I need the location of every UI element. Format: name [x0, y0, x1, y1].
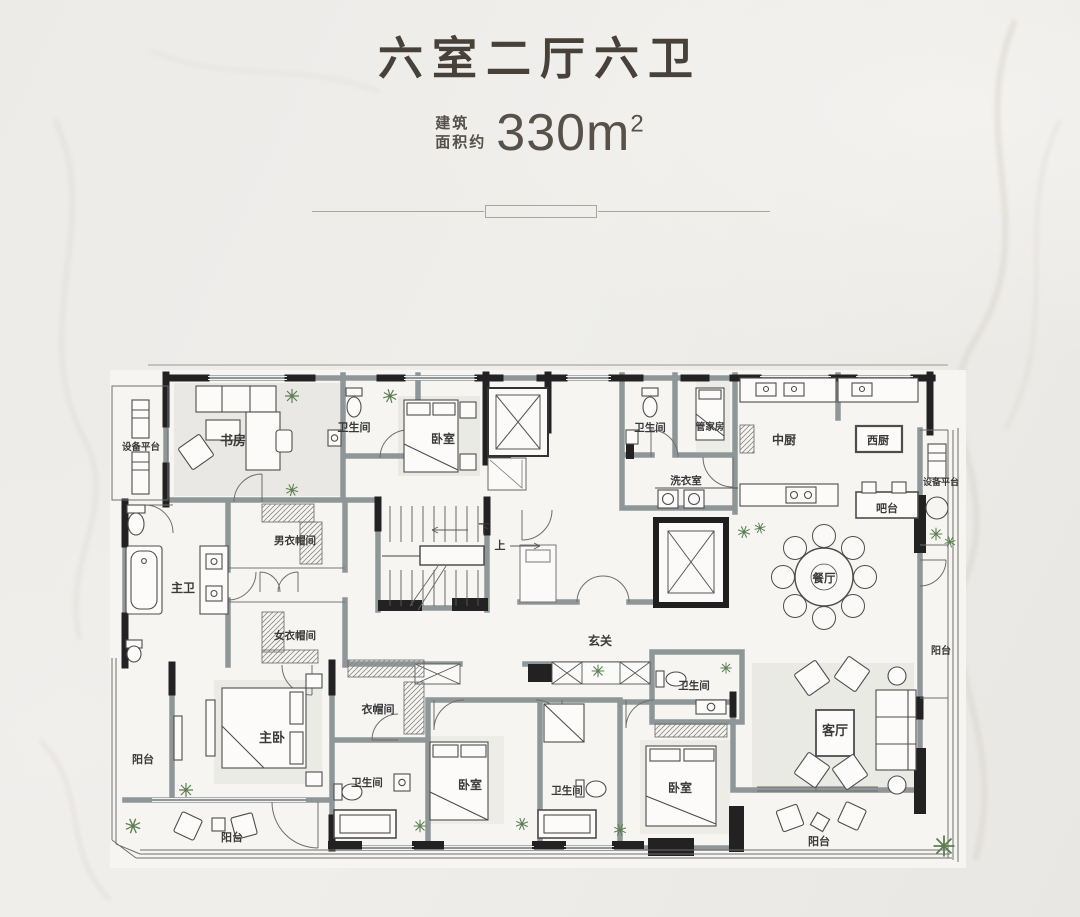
room-label-women-closet: 女衣帽间: [274, 629, 316, 642]
room-label-bathroom-4: 卫生间: [551, 784, 583, 797]
area-prefix-line1: 建筑: [435, 114, 486, 134]
decorative-divider: [312, 204, 770, 218]
room-label-balcony-bottom-right: 阳台: [808, 834, 830, 848]
divider-line-right: [598, 211, 770, 212]
room-label-bedroom-3: 卧室: [668, 780, 692, 795]
room-label-balcony-right: 阳台: [931, 644, 951, 657]
area-superscript: 2: [630, 111, 644, 138]
room-label-bedroom-2: 卧室: [458, 777, 482, 792]
area-value: 330m2: [496, 107, 644, 159]
divider-line-left: [312, 211, 484, 212]
room-label-foyer: 玄关: [588, 633, 612, 648]
room-label-men-closet: 男衣帽间: [274, 534, 316, 547]
room-label-study: 书房: [220, 433, 246, 448]
room-label-bathroom-3: 卫生间: [351, 776, 383, 789]
room-label-equipment-platform-right: 设备平台: [923, 476, 959, 487]
page: 设备平台 书房 卫生间 卧室 卫生间 管家房 中厨 西厨 设备平台 洗衣室 吧台…: [0, 0, 1080, 917]
room-label-bedroom-1: 卧室: [431, 431, 455, 446]
room-label-equipment-platform-left: 设备平台: [122, 441, 161, 453]
stair-label-down: 下: [479, 522, 490, 535]
room-label-dining: 餐厅: [812, 571, 836, 585]
room-label-balcony-bottom-left: 阳台: [221, 830, 243, 844]
area-prefix-line2: 面积约: [435, 133, 486, 153]
room-label-bathroom-2: 卫生间: [634, 421, 666, 434]
elevator-main: [656, 520, 726, 605]
room-label-master-bath: 主卫: [171, 580, 195, 595]
room-label-chinese-kitchen: 中厨: [772, 432, 796, 447]
area-prefix: 建筑 面积约: [435, 114, 486, 153]
room-label-living-room: 客厅: [822, 723, 848, 738]
room-label-housekeeper: 管家房: [696, 421, 725, 433]
room-label-bathroom-5: 卫生间: [678, 679, 710, 692]
room-label-balcony-left: 阳台: [132, 752, 154, 766]
page-title: 六室二厅六卫: [0, 22, 1080, 87]
room-label-closet: 衣帽间: [362, 702, 395, 716]
room-label-master-bedroom: 主卧: [259, 730, 285, 745]
title-block: 六室二厅六卫 建筑 面积约 330m2: [0, 22, 1080, 159]
room-label-laundry: 洗衣室: [670, 474, 702, 487]
room-label-bar: 吧台: [876, 501, 898, 515]
room-label-bathroom-1: 卫生间: [338, 420, 371, 434]
area-number: 330m: [496, 104, 630, 162]
area-line: 建筑 面积约 330m2: [0, 107, 1080, 159]
room-label-western-kitchen: 西厨: [867, 434, 889, 447]
stair-label-up: 上: [495, 538, 506, 552]
divider-center-rect: [485, 205, 597, 218]
